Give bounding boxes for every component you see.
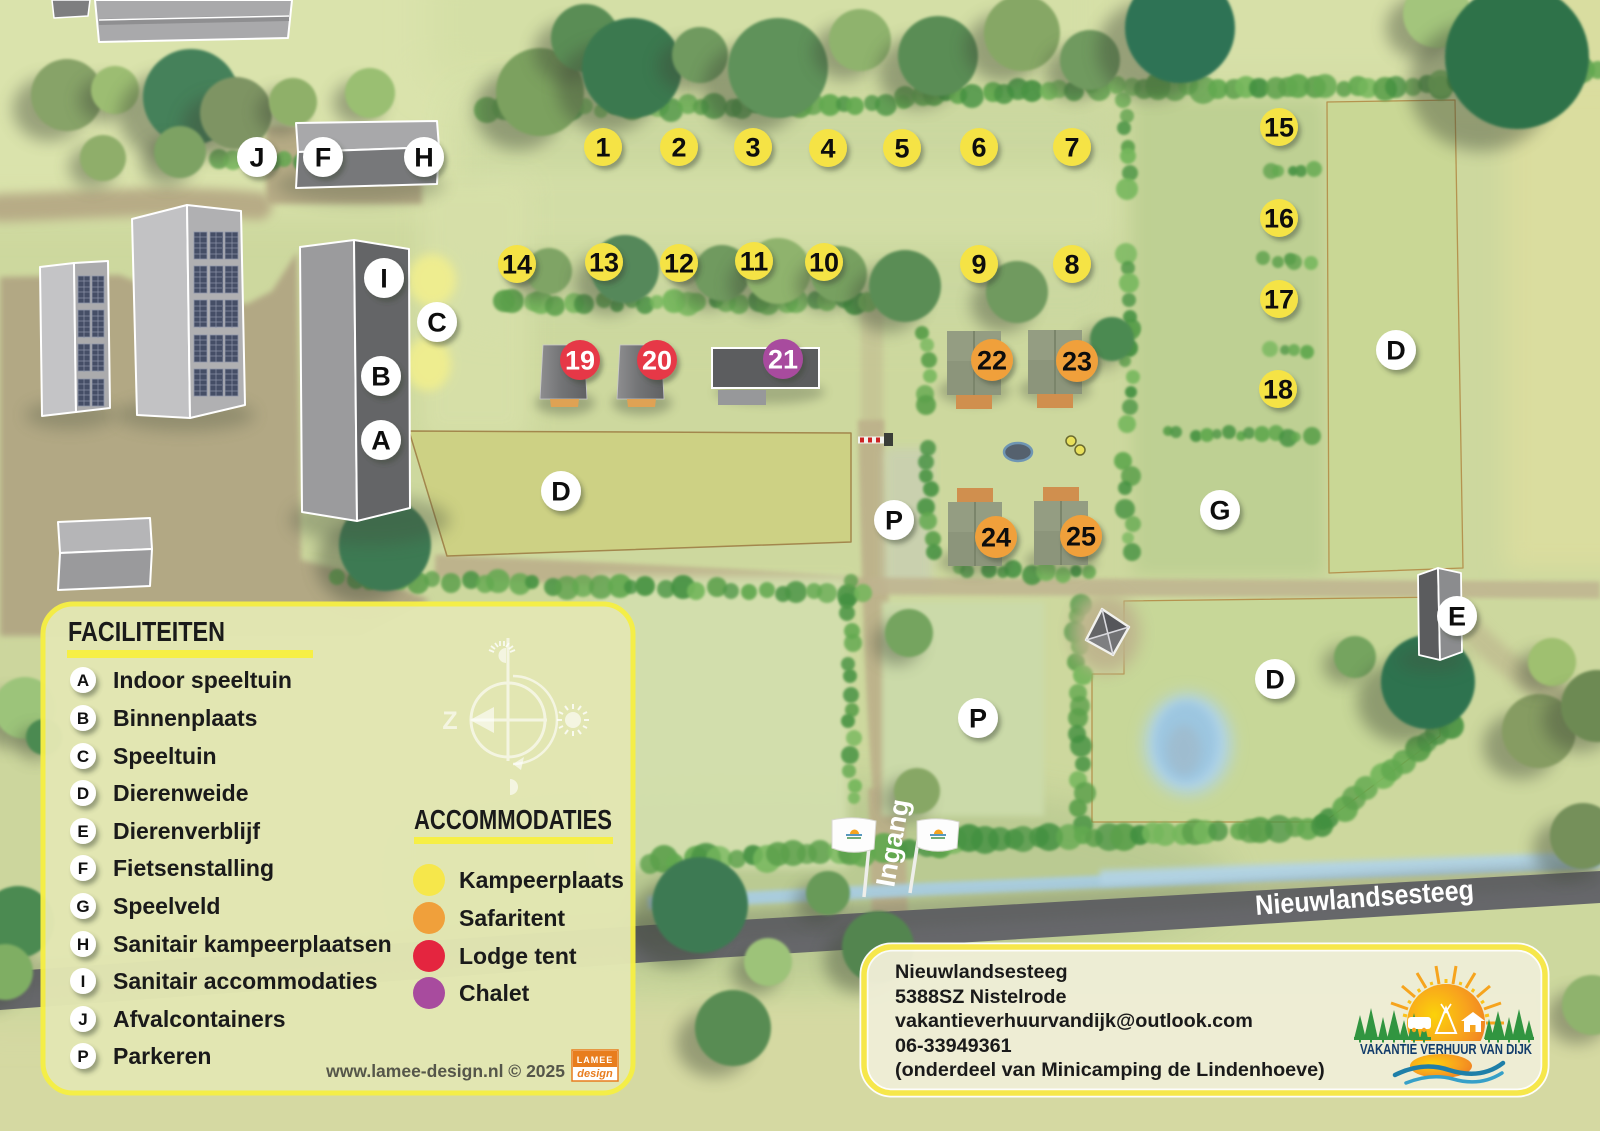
svg-text:H: H bbox=[77, 935, 89, 954]
svg-text:7: 7 bbox=[1064, 133, 1079, 163]
svg-text:Binnenplaats: Binnenplaats bbox=[113, 705, 257, 731]
svg-text:17: 17 bbox=[1264, 285, 1294, 315]
svg-text:Nieuwlandsesteeg: Nieuwlandsesteeg bbox=[895, 961, 1068, 983]
svg-text:C: C bbox=[77, 747, 89, 766]
svg-text:Lodge tent: Lodge tent bbox=[459, 943, 577, 969]
svg-text:Fietsenstalling: Fietsenstalling bbox=[113, 855, 274, 881]
svg-text:18: 18 bbox=[1263, 375, 1293, 405]
svg-text:FACILITEITEN: FACILITEITEN bbox=[68, 616, 225, 647]
svg-text:20: 20 bbox=[642, 346, 672, 376]
svg-text:19: 19 bbox=[565, 346, 595, 376]
svg-text:16: 16 bbox=[1264, 204, 1294, 234]
svg-text:Speelveld: Speelveld bbox=[113, 893, 220, 919]
svg-text:5388SZ Nistelrode: 5388SZ Nistelrode bbox=[895, 986, 1067, 1008]
svg-text:G: G bbox=[76, 897, 89, 916]
svg-text:www.lamee-design.nl © 2025: www.lamee-design.nl © 2025 bbox=[325, 1061, 565, 1081]
svg-text:Indoor speeltuin: Indoor speeltuin bbox=[113, 667, 292, 693]
svg-text:Safaritent: Safaritent bbox=[459, 905, 565, 931]
svg-text:Z: Z bbox=[442, 707, 457, 735]
svg-text:LAMEE: LAMEE bbox=[577, 1055, 614, 1065]
svg-text:B: B bbox=[77, 709, 89, 728]
svg-text:A: A bbox=[77, 671, 89, 690]
svg-text:22: 22 bbox=[977, 346, 1007, 376]
svg-text:Afvalcontainers: Afvalcontainers bbox=[113, 1006, 286, 1032]
svg-text:F: F bbox=[315, 143, 332, 173]
svg-text:Sanitair accommodaties: Sanitair accommodaties bbox=[113, 968, 378, 994]
svg-text:14: 14 bbox=[502, 250, 532, 280]
svg-text:D: D bbox=[77, 784, 89, 803]
svg-text:J: J bbox=[78, 1010, 87, 1029]
svg-text:D: D bbox=[551, 477, 571, 507]
svg-text:(onderdeel van Minicamping de: (onderdeel van Minicamping de Lindenhoev… bbox=[895, 1059, 1325, 1081]
svg-text:P: P bbox=[969, 704, 987, 734]
svg-text:6: 6 bbox=[971, 133, 986, 163]
svg-text:P: P bbox=[77, 1047, 88, 1066]
svg-text:9: 9 bbox=[971, 250, 986, 280]
svg-text:10: 10 bbox=[809, 248, 839, 278]
svg-text:06-33949361: 06-33949361 bbox=[895, 1035, 1012, 1057]
svg-text:2: 2 bbox=[671, 133, 686, 163]
svg-text:P: P bbox=[885, 506, 903, 536]
svg-text:8: 8 bbox=[1064, 250, 1079, 280]
svg-text:Dierenweide: Dierenweide bbox=[113, 780, 249, 806]
svg-text:Parkeren: Parkeren bbox=[113, 1043, 211, 1069]
svg-text:Dierenverblijf: Dierenverblijf bbox=[113, 818, 260, 844]
svg-text:15: 15 bbox=[1264, 113, 1294, 143]
svg-text:H: H bbox=[414, 143, 434, 173]
svg-text:I: I bbox=[81, 972, 86, 991]
svg-text:I: I bbox=[380, 264, 388, 294]
svg-text:Sanitair kampeerplaatsen: Sanitair kampeerplaatsen bbox=[113, 931, 392, 957]
svg-text:23: 23 bbox=[1062, 347, 1092, 377]
svg-text:21: 21 bbox=[768, 345, 798, 375]
svg-text:5: 5 bbox=[894, 134, 909, 164]
svg-text:A: A bbox=[371, 426, 391, 456]
svg-text:12: 12 bbox=[664, 249, 694, 279]
svg-text:25: 25 bbox=[1066, 522, 1096, 552]
svg-text:24: 24 bbox=[981, 523, 1011, 553]
svg-text:Speeltuin: Speeltuin bbox=[113, 743, 217, 769]
svg-text:4: 4 bbox=[820, 134, 835, 164]
svg-text:vakantieverhuurvandijk@outlook: vakantieverhuurvandijk@outlook.com bbox=[895, 1010, 1253, 1032]
svg-text:ACCOMMODATIES: ACCOMMODATIES bbox=[414, 804, 612, 835]
svg-text:D: D bbox=[1265, 665, 1285, 695]
svg-text:11: 11 bbox=[740, 247, 769, 277]
svg-text:E: E bbox=[1448, 602, 1466, 632]
svg-text:G: G bbox=[1209, 496, 1230, 526]
svg-text:C: C bbox=[427, 308, 447, 338]
svg-text:E: E bbox=[77, 822, 88, 841]
svg-text:J: J bbox=[249, 143, 264, 173]
svg-text:D: D bbox=[1386, 336, 1406, 366]
svg-text:1: 1 bbox=[595, 133, 610, 163]
svg-text:3: 3 bbox=[745, 133, 760, 163]
svg-text:design: design bbox=[577, 1068, 613, 1080]
svg-text:F: F bbox=[78, 859, 88, 878]
svg-text:Kampeerplaats: Kampeerplaats bbox=[459, 867, 624, 893]
svg-text:Chalet: Chalet bbox=[459, 980, 530, 1006]
svg-text:13: 13 bbox=[589, 248, 619, 278]
svg-text:B: B bbox=[371, 362, 391, 392]
